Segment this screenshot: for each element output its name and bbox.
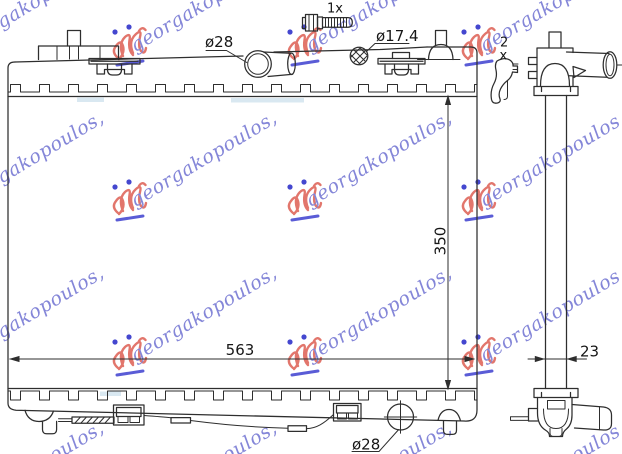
- side-core-column: [546, 96, 567, 389]
- label-core-height: 350: [432, 227, 450, 256]
- label-top-inlet-diameter: ø28: [205, 33, 233, 51]
- callout-bottom-outlet: ø28: [352, 430, 399, 454]
- top-inlet-pipe: [245, 51, 296, 78]
- side-inlet-spout: [567, 52, 622, 79]
- dimension-core-thickness: 23: [528, 343, 599, 363]
- label-core-thickness: 23: [580, 343, 599, 361]
- bottom-left-mounting-peg: [25, 410, 57, 434]
- dimension-core-width: 563: [9, 341, 475, 362]
- wire-connector-left: [114, 405, 145, 425]
- side-top-pin: [549, 32, 561, 48]
- top-right-mounting-pin: [418, 31, 461, 60]
- side-bottom-tank: [511, 398, 612, 437]
- front-view: [8, 31, 477, 435]
- bottom-outlet-pipe: [384, 401, 416, 433]
- left-mounting-bracket: [89, 59, 140, 76]
- side-left-tabs: [529, 58, 538, 79]
- watermark-smudges: [77, 98, 304, 397]
- top-left-mounting-pin: [39, 31, 119, 60]
- dimension-core-height: 350: [432, 95, 452, 391]
- sensor-boss: [348, 42, 371, 68]
- mounting-clip-icon: [491, 59, 518, 104]
- top-crimp-joint: [8, 85, 477, 93]
- label-sensor-diameter: ø17.4: [376, 27, 419, 45]
- drain-plug-icon: [303, 15, 353, 32]
- label-bottom-outlet-diameter: ø28: [352, 436, 380, 454]
- label-clip-quantity-x: x: [500, 49, 508, 64]
- tank-outline: [8, 47, 477, 421]
- right-mounting-bracket: [378, 53, 425, 76]
- side-view: [511, 32, 622, 437]
- tank-top-edge-right: [274, 47, 427, 52]
- side-top-tank: [537, 48, 573, 86]
- radiator-technical-drawing: georgakopoulos, georgakopoulos, georgako…: [0, 0, 622, 454]
- side-top-flange: [534, 87, 578, 96]
- bottom-right-mounting-peg: [438, 410, 461, 435]
- callout-top-inlet: ø28: [205, 33, 247, 63]
- drawing-svg: 563 350 23 ø28 ø17.4 ø28 1x 2 x: [0, 0, 622, 454]
- bottom-crimp-joint: [8, 391, 477, 400]
- label-core-width: 563: [226, 341, 255, 359]
- side-bottom-flange: [534, 389, 578, 398]
- label-drain-plug-quantity: 1x: [327, 2, 343, 17]
